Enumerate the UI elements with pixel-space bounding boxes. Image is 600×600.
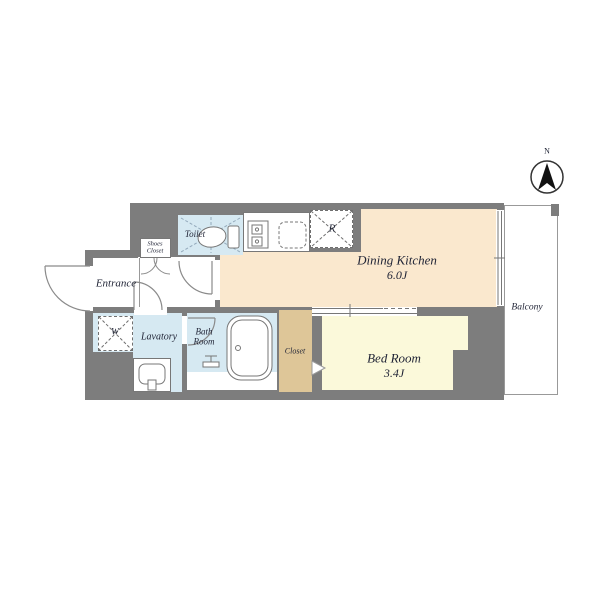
balcony-area <box>504 205 558 395</box>
lavatory-door-opening <box>134 307 167 315</box>
washing-machine-mark: W <box>111 328 119 339</box>
balcony-label: Balcony <box>511 303 542 314</box>
entrance-label: Entrance <box>96 278 136 291</box>
bath-room-label: Bath Room <box>194 327 215 348</box>
room-dining-kitchen-upper <box>361 209 497 253</box>
entrance-step-line <box>139 258 140 307</box>
shoes-closet-label-line1: Shoes <box>147 241 162 248</box>
bath-lower-strip <box>187 372 277 390</box>
bed-room-label: Bed Room <box>367 352 421 367</box>
kitchen-counter <box>243 212 310 252</box>
refrigerator-mark: R <box>329 223 336 236</box>
bed-room-area: 3.4J <box>384 367 404 381</box>
balcony-corner-block <box>551 204 559 216</box>
front-door-icon <box>45 266 90 311</box>
lavatory-label: Lavatory <box>141 331 177 343</box>
north-compass-icon <box>531 161 563 193</box>
front-door-opening <box>85 266 93 311</box>
compass-north-label: N <box>544 146 550 155</box>
dining-kitchen-area: 6.0J <box>387 269 407 283</box>
closet-label: Closet <box>285 346 305 355</box>
bath-door-opening <box>182 316 187 344</box>
balcony-window-opening <box>496 210 504 306</box>
bath-room-label-line2: Room <box>194 337 215 347</box>
shoes-closet-label-line2: Closet <box>147 248 164 255</box>
dk-door-opening <box>215 260 220 300</box>
room-hallway <box>138 257 215 307</box>
bedroom-sliding-door-opening <box>312 307 417 316</box>
floor-plan: Entrance Shoes Closet Toilet Lavatory Ba… <box>0 0 600 600</box>
shoes-closet-label: Shoes Closet <box>147 241 164 256</box>
vanity-box <box>133 358 171 392</box>
bath-room-label-line1: Bath <box>196 327 213 337</box>
dining-kitchen-label: Dining Kitchen <box>357 254 437 269</box>
bed-room-notch-wall <box>453 350 468 390</box>
toilet-label: Toilet <box>185 229 205 239</box>
